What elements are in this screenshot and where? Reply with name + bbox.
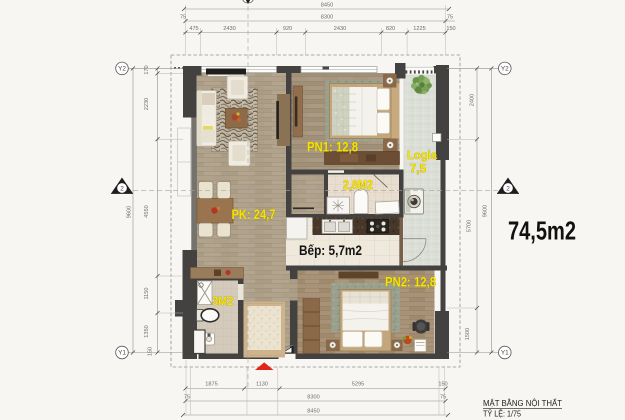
svg-text:8300: 8300 bbox=[321, 15, 333, 21]
svg-text:74,5m2: 74,5m2 bbox=[508, 216, 576, 246]
svg-text:1225: 1225 bbox=[413, 26, 425, 32]
svg-text:4550: 4550 bbox=[144, 205, 150, 217]
svg-text:1350: 1350 bbox=[144, 325, 150, 337]
svg-text:Logia: Logia bbox=[407, 148, 437, 162]
svg-text:2400: 2400 bbox=[470, 94, 476, 106]
svg-text:2430: 2430 bbox=[334, 26, 346, 32]
svg-text:PN2: 12,8: PN2: 12,8 bbox=[385, 274, 436, 290]
svg-text:75: 75 bbox=[180, 15, 186, 21]
svg-text:1500: 1500 bbox=[465, 328, 471, 340]
svg-text:2: 2 bbox=[120, 186, 124, 193]
svg-text:9600: 9600 bbox=[483, 205, 489, 217]
svg-text:Y1: Y1 bbox=[501, 350, 509, 357]
svg-text:8450: 8450 bbox=[321, 3, 333, 9]
svg-text:Bếp: 5,7m2: Bếp: 5,7m2 bbox=[299, 242, 362, 258]
svg-text:150: 150 bbox=[438, 382, 447, 388]
svg-text:3M2: 3M2 bbox=[212, 294, 234, 308]
svg-text:MẶT BẰNG NỘI THẤT: MẶT BẰNG NỘI THẤT bbox=[483, 398, 563, 408]
svg-text:2430: 2430 bbox=[223, 26, 235, 32]
svg-text:5700: 5700 bbox=[467, 220, 473, 232]
svg-text:9600: 9600 bbox=[127, 206, 133, 218]
svg-text:1875: 1875 bbox=[205, 382, 217, 388]
svg-text:5295: 5295 bbox=[352, 382, 364, 388]
svg-text:7,5: 7,5 bbox=[410, 162, 427, 176]
svg-text:PN1: 12,8: PN1: 12,8 bbox=[307, 138, 358, 154]
svg-text:2230: 2230 bbox=[144, 98, 150, 110]
svg-text:475: 475 bbox=[189, 26, 198, 32]
svg-text:8450: 8450 bbox=[307, 409, 319, 415]
svg-text:150: 150 bbox=[446, 26, 455, 32]
svg-text:75: 75 bbox=[447, 15, 453, 21]
svg-text:150: 150 bbox=[148, 347, 154, 356]
svg-text:PK: 24,7: PK: 24,7 bbox=[232, 206, 276, 222]
svg-text:TỶ LỆ: 1/75: TỶ LỆ: 1/75 bbox=[483, 408, 521, 419]
svg-text:Y1: Y1 bbox=[118, 350, 126, 357]
svg-text:8300: 8300 bbox=[307, 395, 319, 401]
svg-text:820: 820 bbox=[386, 26, 395, 32]
svg-text:2,8M2: 2,8M2 bbox=[343, 178, 373, 192]
svg-text:170: 170 bbox=[144, 65, 150, 74]
svg-text:1130: 1130 bbox=[256, 382, 268, 388]
svg-text:Y2: Y2 bbox=[501, 66, 509, 73]
svg-text:1150: 1150 bbox=[144, 287, 150, 299]
svg-text:75: 75 bbox=[184, 395, 190, 401]
svg-text:75: 75 bbox=[440, 395, 446, 401]
svg-text:920: 920 bbox=[283, 26, 292, 32]
svg-text:Y2: Y2 bbox=[118, 66, 126, 73]
svg-text:2: 2 bbox=[506, 186, 510, 193]
